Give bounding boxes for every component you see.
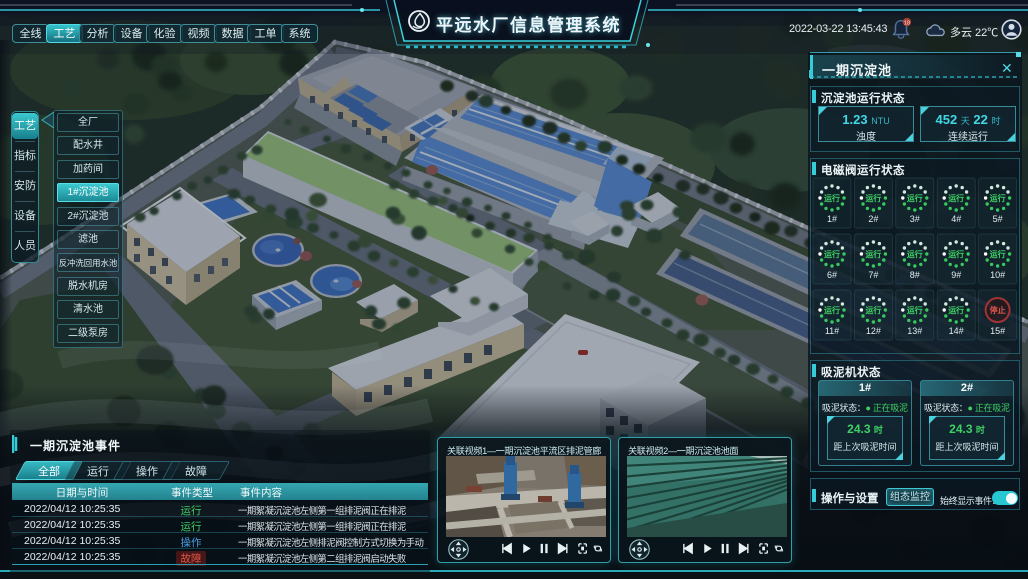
svg-text:4#: 4# bbox=[951, 214, 961, 224]
svg-text:14#: 14# bbox=[949, 326, 964, 336]
svg-text:运行: 运行 bbox=[948, 305, 964, 315]
svg-text:12#: 12# bbox=[866, 326, 881, 336]
svg-text:6#: 6# bbox=[827, 270, 837, 280]
svg-text:运行: 运行 bbox=[824, 305, 840, 315]
svg-text:11#: 11# bbox=[825, 326, 839, 336]
svg-text:运行: 运行 bbox=[990, 249, 1006, 259]
svg-text:运行: 运行 bbox=[865, 305, 881, 315]
svg-text:运行: 运行 bbox=[990, 193, 1006, 203]
svg-text:18: 18 bbox=[904, 20, 910, 26]
svg-text:运行: 运行 bbox=[824, 249, 840, 259]
svg-text:运行: 运行 bbox=[948, 249, 964, 259]
svg-text:运行: 运行 bbox=[907, 305, 923, 315]
svg-text:运行: 运行 bbox=[948, 193, 964, 203]
svg-text:3#: 3# bbox=[910, 214, 920, 224]
svg-text:运行: 运行 bbox=[865, 249, 881, 259]
svg-text:15#: 15# bbox=[990, 326, 1005, 336]
svg-text:13#: 13# bbox=[907, 326, 922, 336]
svg-text:运行: 运行 bbox=[865, 193, 881, 203]
svg-text:8#: 8# bbox=[910, 270, 920, 280]
svg-text:10#: 10# bbox=[990, 270, 1005, 280]
svg-text:9#: 9# bbox=[951, 270, 961, 280]
svg-text:运行: 运行 bbox=[907, 249, 923, 259]
svg-text:运行: 运行 bbox=[907, 193, 923, 203]
svg-text:7#: 7# bbox=[868, 270, 878, 280]
svg-text:1#: 1# bbox=[827, 214, 837, 224]
svg-text:停止: 停止 bbox=[990, 305, 1006, 315]
svg-text:运行: 运行 bbox=[824, 193, 840, 203]
svg-text:5#: 5# bbox=[993, 214, 1003, 224]
svg-text:2#: 2# bbox=[868, 214, 878, 224]
